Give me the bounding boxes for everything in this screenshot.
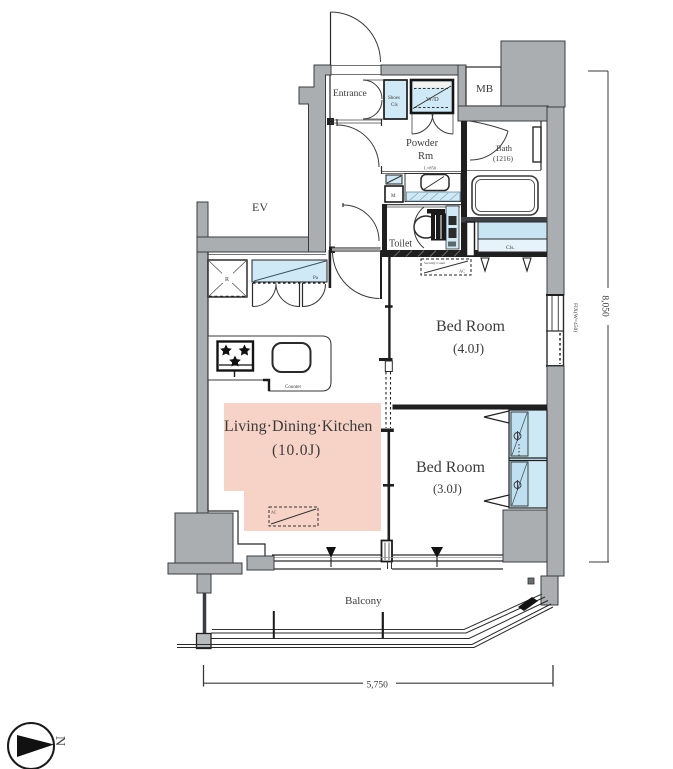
svg-text:(1216): (1216) xyxy=(493,154,513,163)
svg-text:Powder: Powder xyxy=(406,138,439,149)
svg-text:Pa: Pa xyxy=(313,276,319,281)
svg-text:5,750: 5,750 xyxy=(367,681,389,691)
svg-text:(4.0J): (4.0J) xyxy=(453,341,484,356)
svg-text:R: R xyxy=(225,277,229,283)
svg-text:Cls: Cls xyxy=(391,103,398,108)
svg-text:W/D: W/D xyxy=(426,96,439,103)
svg-text:Cls.: Cls. xyxy=(506,245,515,251)
svg-text:N: N xyxy=(52,736,67,746)
svg-text:Balcony: Balcony xyxy=(345,595,382,607)
svg-text:Shoes: Shoes xyxy=(388,96,400,101)
svg-text:Security Count: Security Count xyxy=(424,261,445,265)
svg-text:Toilet: Toilet xyxy=(389,239,412,250)
svg-text:FIX(W=450): FIX(W=450) xyxy=(572,303,579,332)
svg-text:(10.0J): (10.0J) xyxy=(272,442,321,459)
svg-text:Living·Dining·Kitchen: Living·Dining·Kitchen xyxy=(224,418,372,435)
svg-text:Counter: Counter xyxy=(285,385,301,390)
svg-text:L=850: L=850 xyxy=(424,166,437,171)
svg-text:Entrance: Entrance xyxy=(333,89,367,99)
svg-text:MB: MB xyxy=(476,83,493,95)
svg-text:Bed Room: Bed Room xyxy=(416,459,485,476)
svg-text:8,050: 8,050 xyxy=(600,295,610,317)
svg-text:EV: EV xyxy=(252,200,268,214)
svg-text:M: M xyxy=(391,194,396,199)
svg-text:Bed Room: Bed Room xyxy=(436,318,505,335)
svg-text:(3.0J): (3.0J) xyxy=(433,482,462,496)
svg-text:Rm: Rm xyxy=(418,151,433,162)
svg-text:AC: AC xyxy=(459,269,465,274)
svg-text:AC: AC xyxy=(271,510,277,515)
